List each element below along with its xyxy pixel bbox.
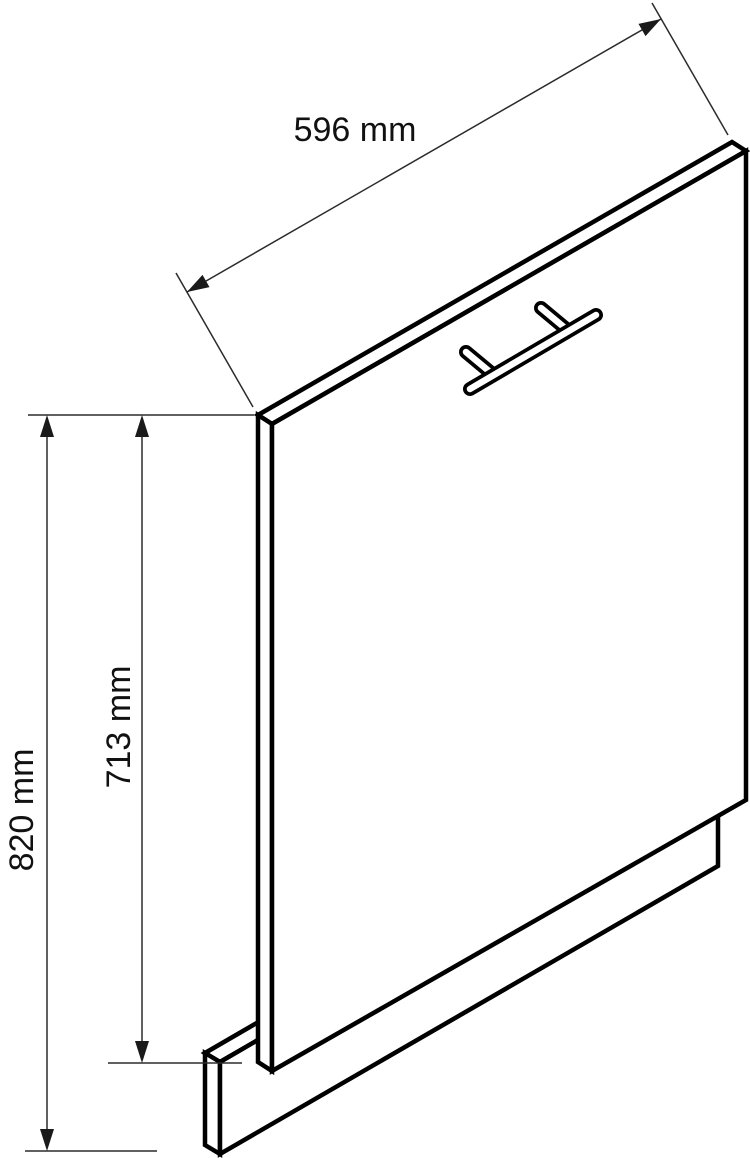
panel-height-dimension-label: 713 mm <box>100 666 138 789</box>
arrow-left-icon <box>187 275 210 292</box>
technical-drawing: 820 mm 713 mm 596 mm <box>0 0 750 1158</box>
drawing-canvas: 820 mm 713 mm 596 mm <box>0 0 750 1158</box>
width-left-extension-line <box>176 273 253 407</box>
arrow-up-icon <box>135 415 149 437</box>
width-right-extension-line <box>652 3 728 135</box>
arrow-up-icon <box>40 415 54 437</box>
arrow-right-icon <box>639 19 662 36</box>
panel-height-dimension: 713 mm <box>100 415 149 1063</box>
width-dimension-label: 596 mm <box>294 111 417 149</box>
arrow-down-icon <box>40 1129 54 1151</box>
arrow-down-icon <box>135 1041 149 1063</box>
total-height-dimension-label: 820 mm <box>3 749 41 872</box>
front-panel <box>258 142 746 1071</box>
panel-front-face <box>272 151 746 1071</box>
